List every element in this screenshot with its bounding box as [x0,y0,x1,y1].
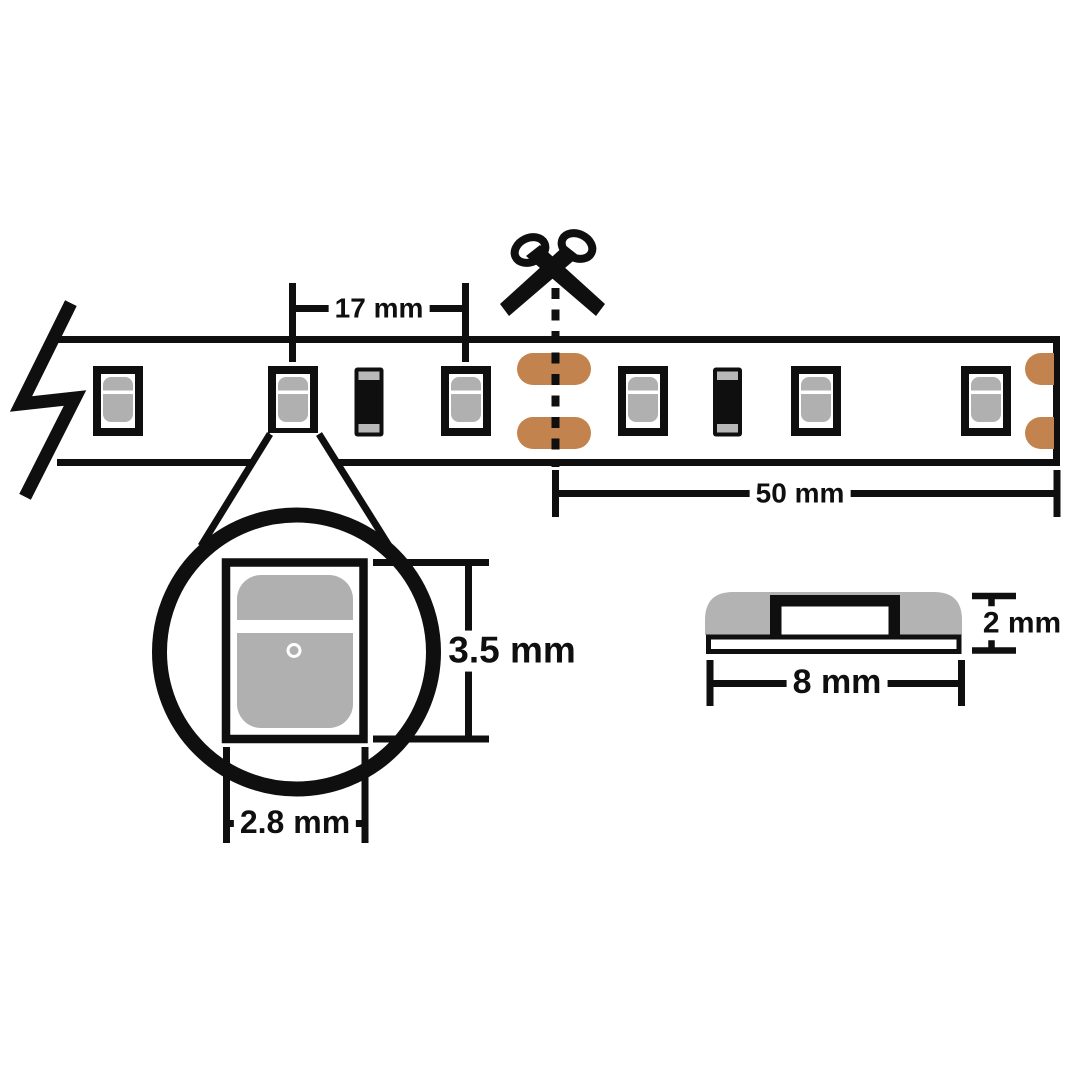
led-component-4 [622,370,664,432]
led-component-3 [445,370,487,432]
enlarged-led [226,563,364,740]
profile-height-dimension-label: 2 mm [977,606,1067,640]
profile-width-dimension-label: 8 mm [787,664,888,702]
end-solder-pads [1025,353,1054,449]
led-detail-view [160,433,490,843]
diagram-svg [0,0,1080,1080]
led-height-dimension-label: 3.5 mm [442,631,582,672]
scissors-icon [500,228,605,316]
led-component-5 [795,370,837,432]
led-component-1 [97,370,139,432]
led-component-6 [965,370,1007,432]
pcb-side-view [709,637,960,652]
pitch-dimension-label: 17 mm [329,292,430,323]
resistor-component-1 [355,368,384,437]
led-strip-dimension-diagram: 17 mm 50 mm 3.5 mm 2.8 mm 2 mm 8 mm [0,0,1080,1080]
led-side-view [770,595,900,637]
led-component-2 [272,370,314,432]
strip-top-view [21,228,1057,517]
led-width-dimension-label: 2.8 mm [234,805,356,841]
resistor-component-2 [713,368,742,437]
cut-length-dimension-label: 50 mm [750,477,851,508]
